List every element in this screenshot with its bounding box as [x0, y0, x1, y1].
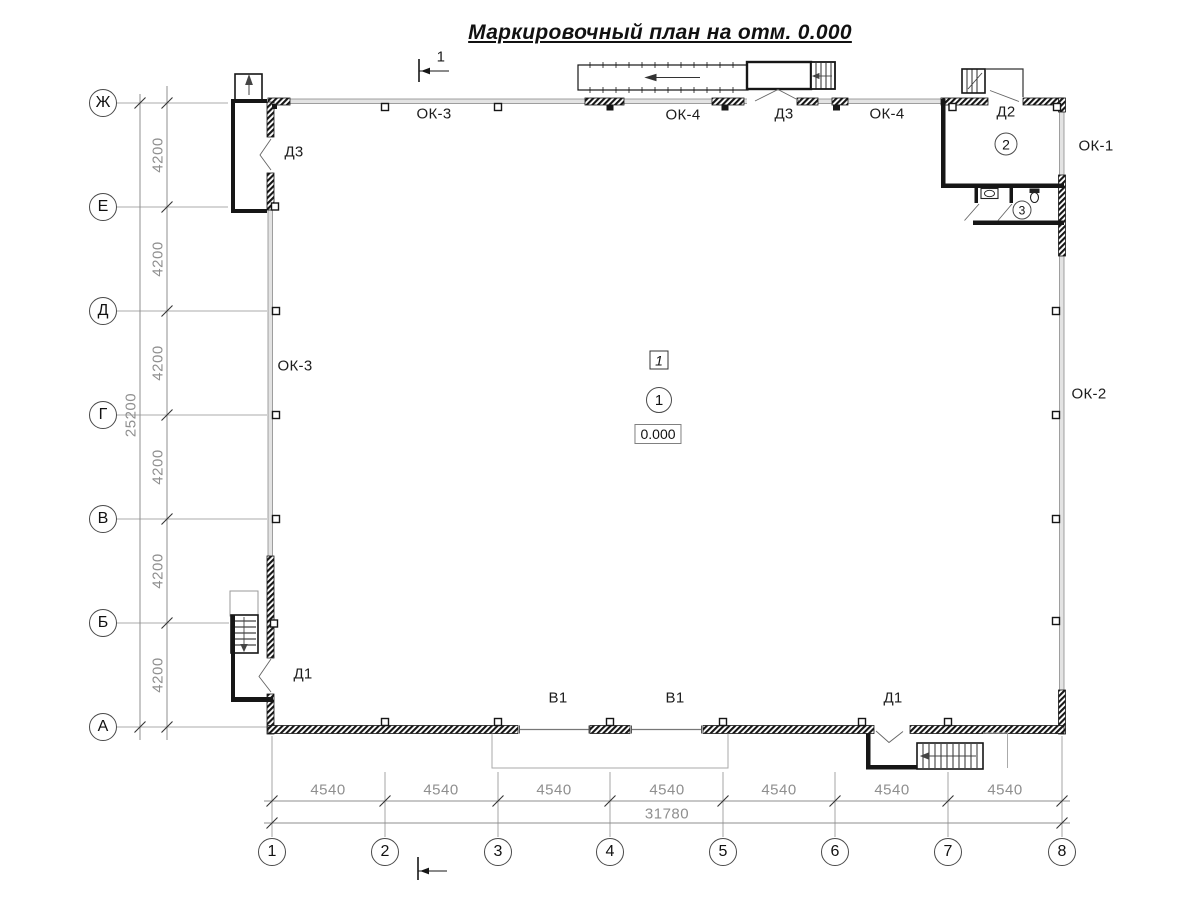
axis-number: 5	[719, 843, 728, 861]
axis-letter: Е	[98, 198, 109, 216]
floor-plan-page: Маркировочный план на отм. 0.000 Ж Е Д Г…	[0, 0, 1200, 900]
wall-openings	[266, 97, 1023, 694]
section-mark-bottom	[418, 857, 447, 880]
label-d3-middle: Д3	[774, 106, 793, 123]
landing-rail	[985, 69, 1023, 97]
dim-row-4: 4200	[150, 449, 167, 484]
room-circle-3: 3	[1013, 201, 1032, 220]
axis-circle-row-g: Г	[89, 401, 117, 429]
drawing-title: Маркировочный план на отм. 0.000	[468, 21, 852, 45]
axis-circle-col-8: 8	[1048, 838, 1076, 866]
vestibule-top-middle	[747, 62, 835, 101]
toilet-bowl	[1031, 193, 1039, 203]
axis-number: 1	[268, 843, 277, 861]
axis-circle-col-4: 4	[596, 838, 624, 866]
dim-col-3: 4540	[536, 782, 571, 799]
room-number: 2	[1002, 136, 1010, 152]
label-d1-left: Д1	[293, 666, 312, 683]
room-number: 3	[1019, 203, 1026, 217]
axis-circle-col-3: 3	[484, 838, 512, 866]
dim-row-total: 25200	[123, 393, 140, 437]
label-v1-right: В1	[666, 690, 685, 707]
elevation-mark: 0.000	[634, 424, 681, 444]
dim-row-3: 4200	[150, 345, 167, 380]
unit-marker-square: 1	[650, 351, 669, 370]
unit-number: 1	[655, 352, 663, 368]
dim-row-2: 4200	[150, 241, 167, 276]
stair-top-right	[962, 69, 1023, 102]
axis-circle-col-6: 6	[821, 838, 849, 866]
axis-letter: Б	[98, 614, 109, 632]
dim-col-7: 4540	[987, 782, 1022, 799]
stall-door-swing-2	[998, 204, 1012, 221]
dim-col-1: 4540	[310, 782, 345, 799]
axis-letter: Ж	[96, 94, 111, 112]
dim-row-6: 4200	[150, 657, 167, 692]
porch-landing	[983, 733, 1008, 768]
axis-number: 8	[1058, 843, 1067, 861]
dim-row-5: 4200	[150, 553, 167, 588]
dim-row-1: 4200	[150, 137, 167, 172]
pilasters	[271, 104, 1061, 726]
room-circle-1: 1	[646, 387, 672, 413]
axis-number: 2	[381, 843, 390, 861]
stall-door-swing-1	[965, 204, 980, 221]
vestibule-top-left	[231, 74, 267, 213]
room-number: 1	[655, 392, 663, 409]
axis-circle-row-zh: Ж	[89, 89, 117, 117]
masonry-walls	[267, 98, 1066, 734]
axis-circle-row-v: В	[89, 505, 117, 533]
ramp-top	[578, 62, 748, 93]
label-d3-left: Д3	[284, 144, 303, 161]
axis-number: 4	[606, 843, 615, 861]
axis-circle-col-2: 2	[371, 838, 399, 866]
label-d2: Д2	[996, 104, 1015, 121]
dim-col-2: 4540	[423, 782, 458, 799]
axis-number: 6	[831, 843, 840, 861]
section-mark-number: 1	[437, 49, 446, 66]
dim-col-total: 31780	[645, 806, 689, 823]
door-swing-d1-right	[876, 731, 903, 743]
axis-circle-row-a: А	[89, 713, 117, 741]
dim-col-4: 4540	[649, 782, 684, 799]
axis-circle-row-b: Б	[89, 609, 117, 637]
axis-number: 7	[944, 843, 953, 861]
axis-letter: Г	[99, 406, 108, 424]
room-circle-2: 2	[995, 133, 1018, 156]
axis-circle-col-7: 7	[934, 838, 962, 866]
exterior-window-bands	[268, 99, 1064, 734]
dim-col-5: 4540	[761, 782, 796, 799]
axis-circle-row-d: Д	[89, 297, 117, 325]
axis-letter: Д	[98, 302, 109, 320]
gate-apron	[492, 734, 728, 769]
label-ok1: ОК-1	[1079, 138, 1114, 155]
axis-circle-row-e: Е	[89, 193, 117, 221]
axis-circle-col-1: 1	[258, 838, 286, 866]
stair-bottom-right	[866, 731, 1008, 770]
label-v1-left: В1	[549, 690, 568, 707]
floor-plan-drawing	[0, 0, 1200, 900]
label-ok3-left: ОК-3	[278, 358, 313, 375]
label-ok4-left: ОК-4	[666, 107, 701, 124]
axis-circle-col-5: 5	[709, 838, 737, 866]
label-d1-right: Д1	[883, 690, 902, 707]
label-ok2: ОК-2	[1072, 386, 1107, 403]
label-ok3-top: ОК-3	[417, 106, 452, 123]
axis-letter: В	[98, 510, 109, 528]
dim-col-6: 4540	[874, 782, 909, 799]
axis-number: 3	[494, 843, 503, 861]
axis-letter: А	[98, 718, 109, 736]
label-ok4-right: ОК-4	[870, 106, 905, 123]
